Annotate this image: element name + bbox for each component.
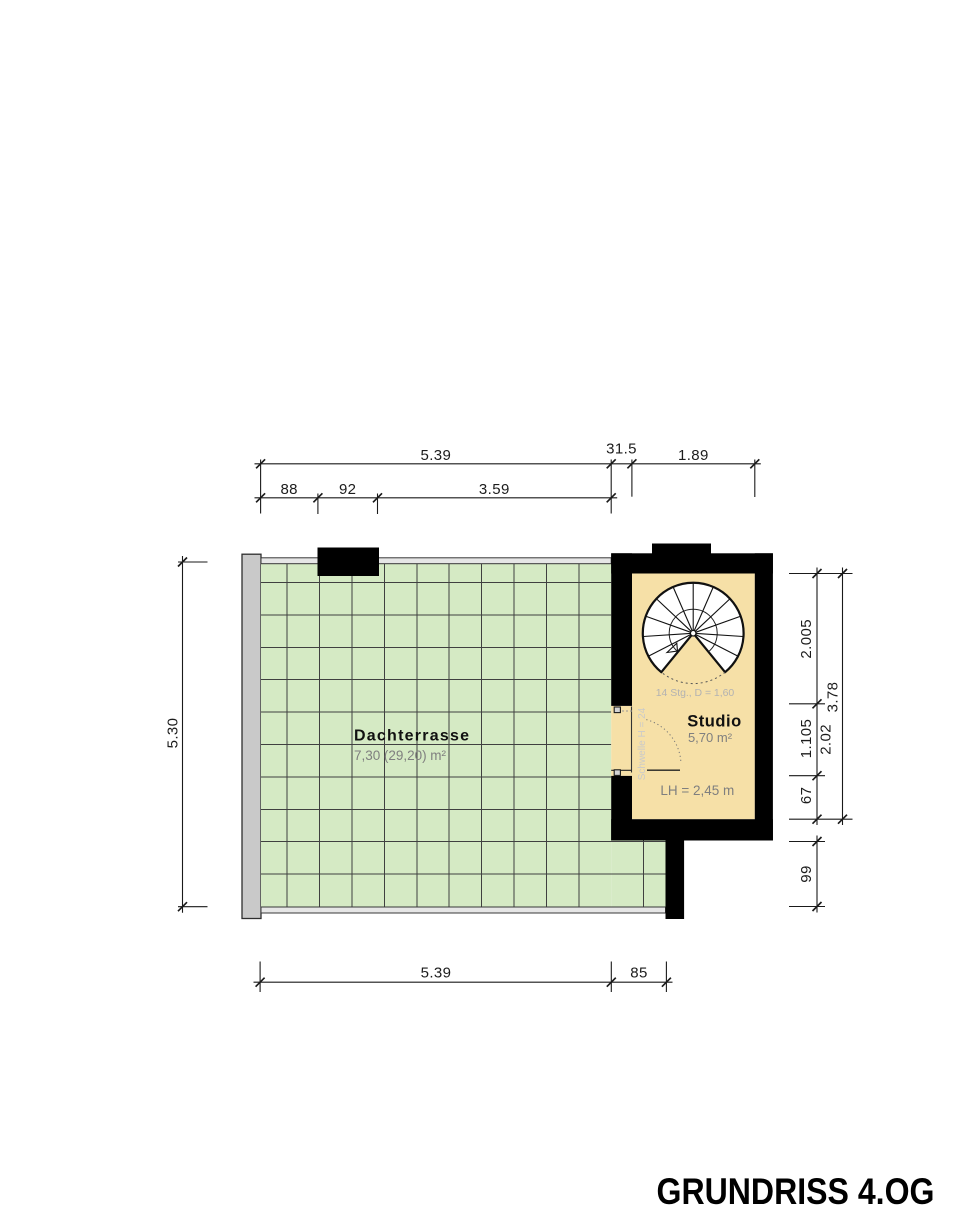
svg-text:67: 67: [798, 787, 815, 805]
svg-text:GRUNDRISS 4.OG: GRUNDRISS 4.OG: [657, 1170, 935, 1212]
svg-text:99: 99: [798, 865, 815, 883]
svg-text:5.30: 5.30: [165, 718, 182, 749]
svg-text:3.59: 3.59: [479, 481, 510, 498]
svg-text:1.89: 1.89: [678, 447, 709, 464]
svg-text:5.39: 5.39: [421, 447, 452, 464]
svg-text:85: 85: [630, 965, 648, 982]
svg-text:2.02: 2.02: [818, 724, 835, 755]
svg-text:Dachterrasse: Dachterrasse: [354, 728, 469, 745]
svg-text:5,70 m²: 5,70 m²: [688, 730, 733, 745]
svg-text:1.105: 1.105: [798, 719, 815, 759]
svg-text:Schwelle H = 24: Schwelle H = 24: [637, 707, 648, 780]
svg-text:14 Stg., D = 1,60: 14 Stg., D = 1,60: [656, 687, 735, 699]
svg-text:3.78: 3.78: [825, 682, 842, 713]
svg-text:2.005: 2.005: [798, 619, 815, 659]
svg-text:7,30 (29,20) m²: 7,30 (29,20) m²: [354, 748, 447, 763]
svg-text:Studio: Studio: [687, 713, 741, 731]
svg-text:88: 88: [280, 481, 298, 498]
svg-text:5.39: 5.39: [421, 965, 452, 982]
svg-text:31.5: 31.5: [606, 441, 637, 458]
svg-text:LH = 2,45 m: LH = 2,45 m: [660, 783, 734, 798]
svg-text:92: 92: [339, 481, 357, 498]
